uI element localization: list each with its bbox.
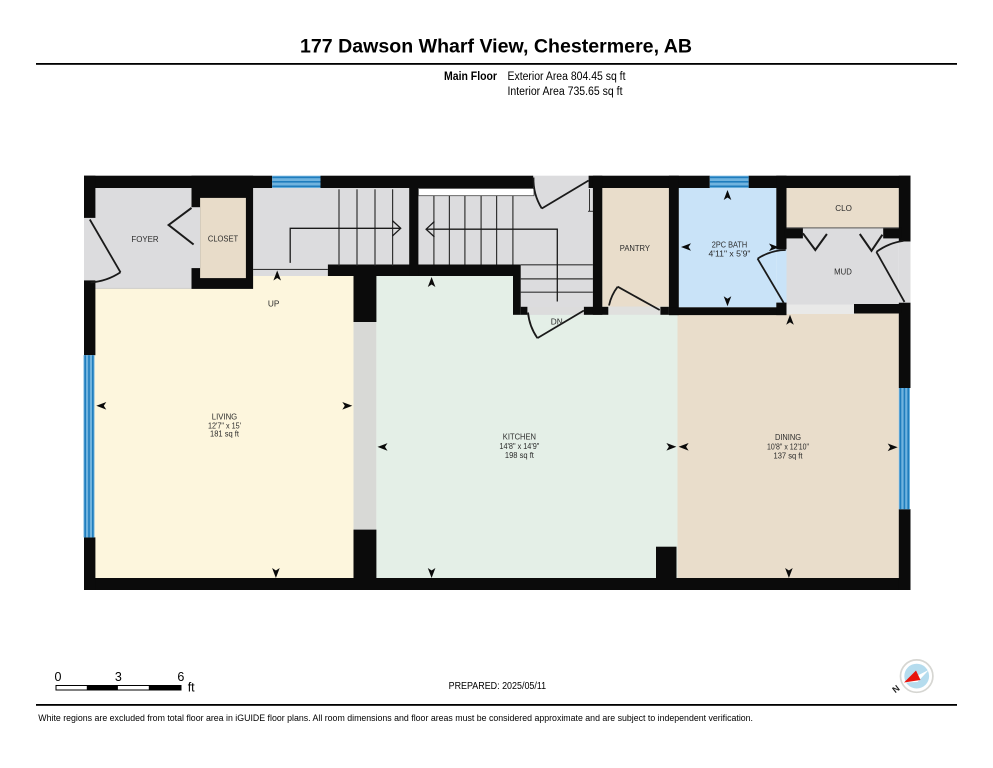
svg-text:White regions are excluded fro: White regions are excluded from total fl… bbox=[38, 713, 753, 723]
svg-text:177 Dawson Wharf View, Chester: 177 Dawson Wharf View, Chestermere, AB bbox=[300, 36, 692, 58]
svg-text:UP: UP bbox=[268, 298, 280, 308]
svg-text:FOYER: FOYER bbox=[131, 234, 158, 244]
svg-text:198 sq ft: 198 sq ft bbox=[505, 450, 535, 460]
svg-text:PANTRY: PANTRY bbox=[620, 243, 651, 253]
svg-text:Main Floor: Main Floor bbox=[444, 71, 497, 83]
svg-text:6: 6 bbox=[177, 670, 184, 684]
svg-text:DN: DN bbox=[551, 317, 563, 327]
svg-text:ft: ft bbox=[188, 680, 195, 694]
svg-text:181 sq ft: 181 sq ft bbox=[210, 429, 240, 439]
svg-text:Exterior Area 804.45 sq ft: Exterior Area 804.45 sq ft bbox=[508, 71, 627, 83]
svg-text:0: 0 bbox=[55, 670, 62, 684]
svg-text:PREPARED: 2025/05/11: PREPARED: 2025/05/11 bbox=[449, 681, 547, 692]
svg-text:4'11" x 5'9": 4'11" x 5'9" bbox=[709, 249, 751, 259]
svg-text:3: 3 bbox=[115, 670, 122, 684]
svg-text:MUD: MUD bbox=[834, 266, 852, 276]
svg-text:CLO: CLO bbox=[835, 203, 852, 213]
svg-text:Interior Area 735.65 sq ft: Interior Area 735.65 sq ft bbox=[508, 86, 624, 98]
svg-text:137 sq ft: 137 sq ft bbox=[774, 451, 804, 461]
svg-text:CLOSET: CLOSET bbox=[208, 234, 238, 244]
